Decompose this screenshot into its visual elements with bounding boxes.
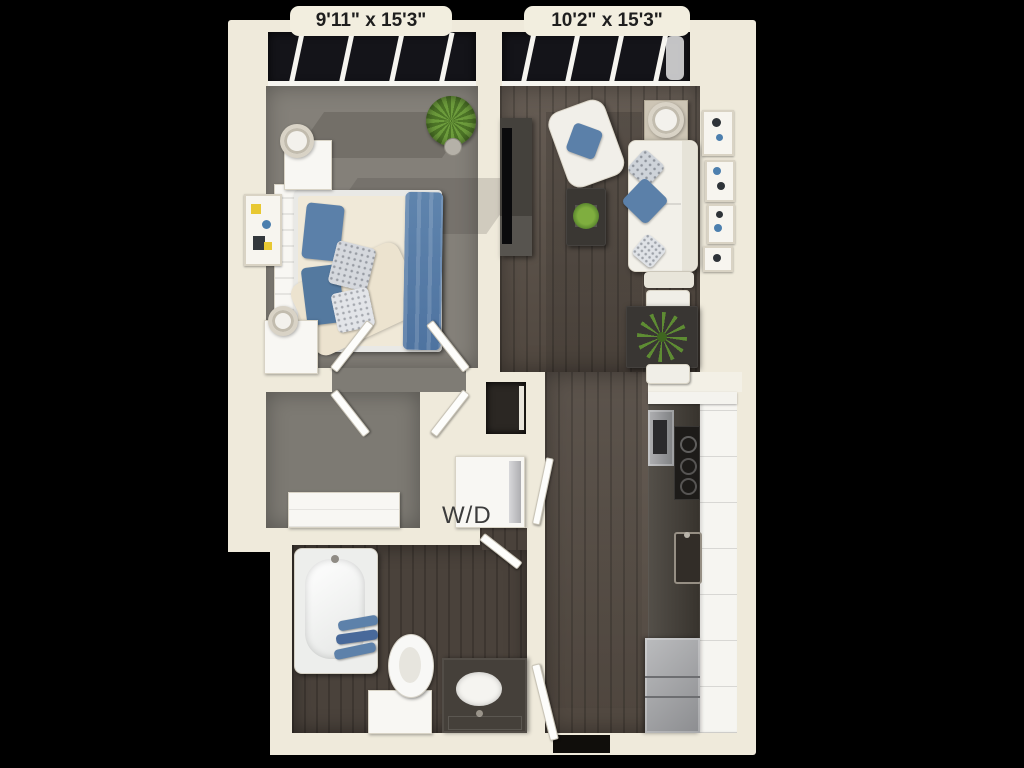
art-shape [264, 242, 272, 250]
bathtub-basin [305, 559, 365, 659]
vanity-tray [448, 716, 522, 730]
tv-icon [502, 128, 512, 244]
art-shape [714, 224, 722, 232]
table-lamp-icon [648, 102, 684, 138]
kitchen-sink [674, 532, 702, 584]
sofa-backrest [682, 141, 697, 271]
bedroom-doorway-opening [332, 368, 466, 392]
living-room-windows [502, 32, 690, 86]
window-mullion-icon [564, 32, 580, 86]
bedroom-dimension-label: 9'11" x 15'3" [290, 6, 452, 36]
wall-art [705, 160, 735, 202]
art-shape [717, 182, 725, 190]
washer-dryer-label: W/D [442, 502, 492, 530]
pantry-nook [486, 382, 526, 434]
art-shape [716, 134, 723, 141]
sink-faucet-icon [684, 532, 690, 538]
sheer-curtain [666, 36, 684, 80]
art-shape [262, 220, 271, 229]
art-shape [251, 204, 261, 214]
bedroom-wall-art [244, 194, 282, 266]
refrigerator [645, 638, 700, 733]
living-dimension-label: 10'2" x 15'3" [524, 6, 690, 36]
palm-plant-center [657, 332, 667, 342]
burner-icon [680, 458, 697, 475]
building-step-cutout [228, 552, 270, 755]
cooktop [674, 426, 700, 500]
bedroom-windows [268, 32, 476, 86]
burner-icon [680, 478, 697, 495]
art-shape [712, 118, 721, 127]
window-mullion-icon [338, 32, 354, 86]
window-mullion-icon [388, 32, 404, 86]
pantry-door-edge [519, 386, 524, 430]
window-mullion-icon [288, 32, 304, 86]
floor-plan-image: 9'11" x 15'3" 10'2" x 15'3" [228, 20, 756, 755]
fridge-door-seam [645, 696, 700, 698]
window-mullion-icon [520, 32, 536, 86]
art-shape [713, 254, 721, 262]
closet-dresser [288, 492, 400, 528]
table-lamp-icon [280, 124, 314, 158]
table-lamp-icon [268, 306, 298, 336]
wall-art [702, 110, 734, 156]
wall-art [707, 204, 735, 244]
kitchen-cabinet-run [700, 392, 737, 733]
art-shape [716, 211, 723, 218]
window-mullion-icon [438, 32, 454, 86]
washer-dryer-text: W/D [442, 502, 492, 529]
entry-threshold [553, 735, 610, 753]
coffee-table [566, 188, 606, 246]
bathroom-vanity [442, 658, 527, 733]
potted-plant-icon [573, 203, 599, 229]
vanity-sink [456, 672, 502, 706]
ottoman [644, 272, 694, 288]
dining-table [626, 306, 698, 368]
fridge-door-seam [645, 676, 700, 678]
wall-oven [648, 410, 674, 466]
closet-door-leaf [430, 389, 470, 437]
toilet-tank [368, 690, 432, 734]
art-shape [713, 167, 721, 175]
kitchen-upper-shelf [648, 392, 737, 404]
toilet-bowl [388, 634, 434, 698]
screenshot-canvas: 9'11" x 15'3" 10'2" x 15'3" [0, 0, 1024, 768]
tub-faucet-icon [331, 555, 339, 563]
bedroom-dimension-text: 9'11" x 15'3" [316, 10, 427, 31]
burner-icon [680, 436, 697, 453]
window-mullion-icon [608, 32, 624, 86]
toilet-seat [399, 647, 421, 683]
plant-pot [444, 138, 462, 156]
oven-window [653, 420, 667, 454]
washer-dryer-panel [509, 461, 521, 523]
living-dimension-text: 10'2" x 15'3" [551, 10, 663, 31]
dining-chair [646, 364, 690, 384]
wall-art [703, 246, 733, 272]
